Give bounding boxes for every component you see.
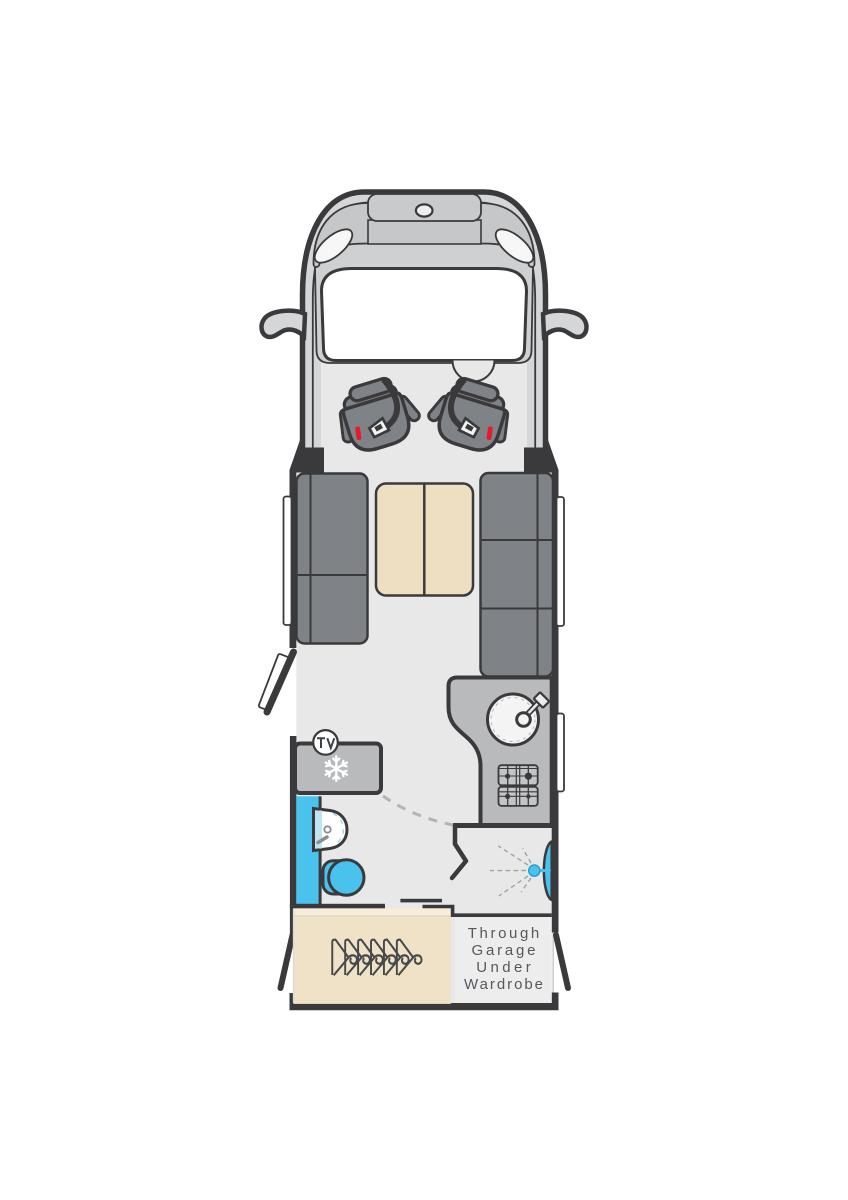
- svg-text:Wardrobe: Wardrobe: [464, 976, 543, 993]
